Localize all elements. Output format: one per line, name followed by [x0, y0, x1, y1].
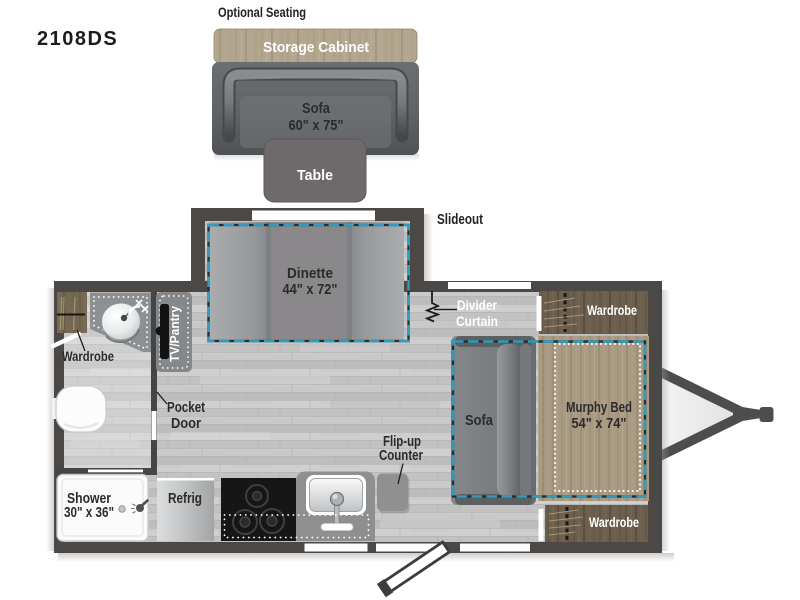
svg-text:60" x 75": 60" x 75" [289, 117, 344, 134]
svg-text:2108DS: 2108DS [37, 28, 118, 50]
svg-text:Dinette: Dinette [287, 265, 333, 282]
svg-text:Murphy Bed: Murphy Bed [566, 399, 632, 416]
svg-text:Pocket: Pocket [167, 399, 205, 416]
svg-text:Slideout: Slideout [437, 211, 483, 228]
svg-text:Sofa: Sofa [465, 412, 494, 429]
svg-text:Sofa: Sofa [302, 100, 331, 117]
svg-text:Divider: Divider [457, 297, 497, 313]
svg-text:TV/Pantry: TV/Pantry [167, 305, 182, 362]
svg-text:44" x 72": 44" x 72" [283, 281, 338, 298]
svg-text:Door: Door [171, 415, 201, 432]
svg-text:Storage Cabinet: Storage Cabinet [263, 39, 369, 56]
svg-text:Wardrobe: Wardrobe [587, 302, 637, 318]
svg-text:Table: Table [297, 167, 333, 184]
svg-text:Counter: Counter [379, 447, 423, 464]
svg-text:Wardrobe: Wardrobe [589, 514, 639, 530]
svg-text:30" x 36": 30" x 36" [64, 504, 114, 521]
svg-text:Curtain: Curtain [456, 313, 498, 329]
svg-text:Wardrobe: Wardrobe [62, 348, 114, 364]
svg-text:Optional Seating: Optional Seating [218, 4, 306, 20]
svg-text:Refrig: Refrig [168, 490, 202, 507]
svg-text:54" x 74": 54" x 74" [572, 415, 627, 432]
